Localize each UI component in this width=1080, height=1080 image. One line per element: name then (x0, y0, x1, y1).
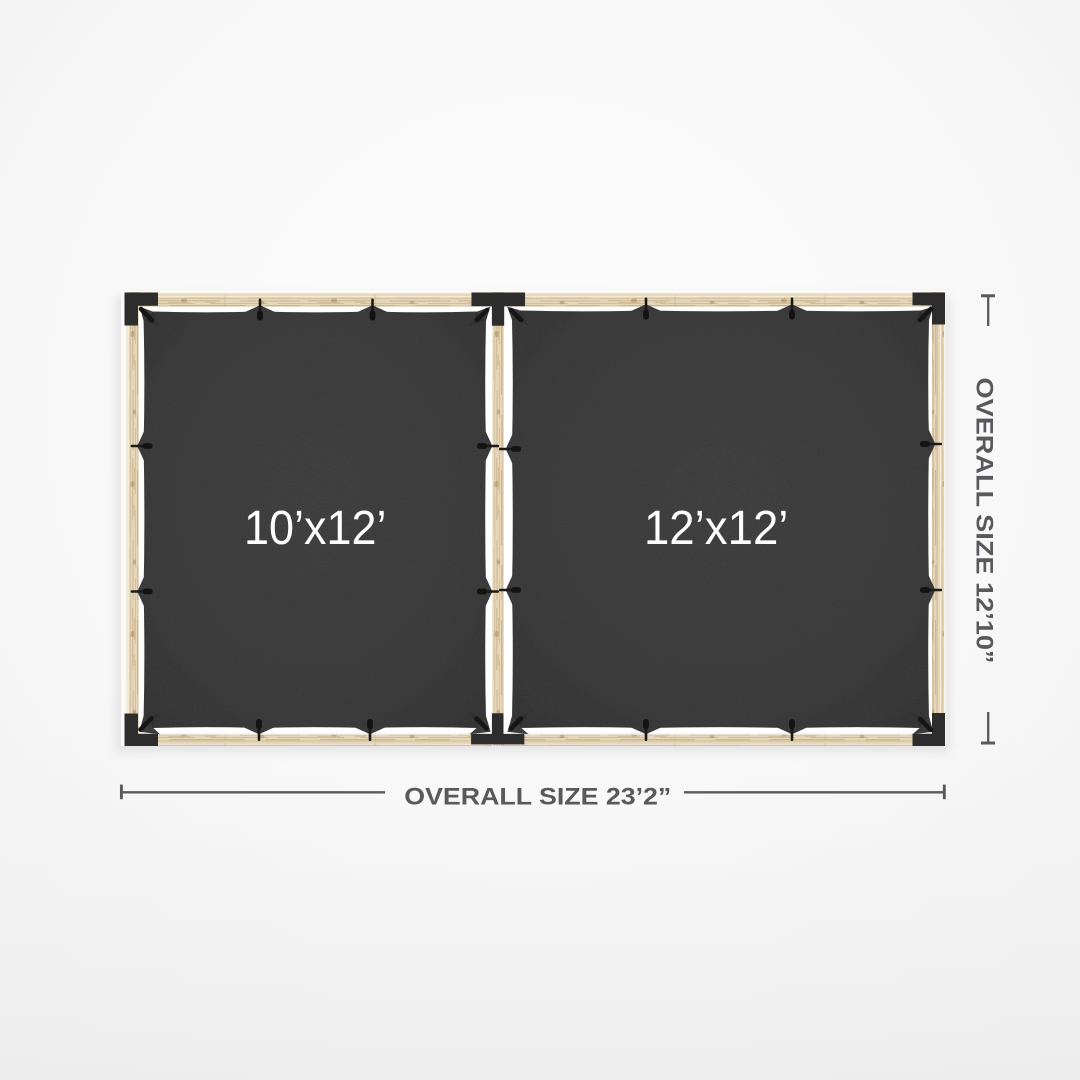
svg-text:12’x12’: 12’x12’ (644, 501, 789, 555)
svg-text:OVERALL SIZE 12’10”: OVERALL SIZE 12’10” (970, 378, 997, 664)
svg-text:10’x12’: 10’x12’ (244, 501, 387, 555)
svg-text:OVERALL SIZE 23’2”: OVERALL SIZE 23’2” (404, 784, 671, 811)
